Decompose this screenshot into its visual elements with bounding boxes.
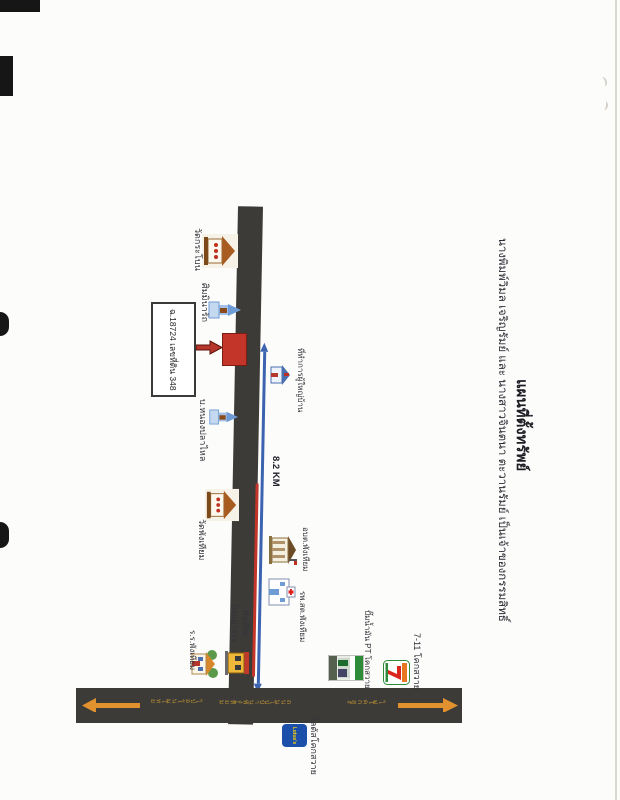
wat-krabon-label: วัดกระโบน: [193, 228, 202, 271]
school-label: ร.ร.พังเทียม: [188, 630, 196, 670]
route-arrow-right-icon: [398, 698, 458, 712]
property-marker: [222, 333, 247, 366]
hospital-label: รพ.สต.พังเทียม: [298, 591, 306, 642]
distance-label: 8.2 KM: [271, 456, 281, 487]
hospital-icon: [265, 577, 297, 607]
gas-station-photo: [328, 655, 364, 681]
road-label-middle: มยทีเงพันาบ้ปไนนถ: [218, 699, 291, 706]
pt-station-label: ปั๊มน้ำมัน PT โคกสวาย: [363, 610, 371, 689]
road-label-right: งสูกคโปไ: [347, 699, 382, 706]
government-office-icon: [264, 535, 298, 565]
spire-pavilion-icon: [208, 407, 238, 427]
main-road-group: [216, 206, 272, 725]
punch-hole-mark: [0, 522, 9, 548]
punch-hole-mark: [0, 312, 9, 336]
lotus-label: โลตัสโคกสวาย: [309, 716, 318, 775]
ban-nong-pla-lai-label: บ.หนองปลาไหล: [198, 399, 207, 461]
wat-phang-thiam-label: วัดพังเทียม: [197, 519, 206, 560]
page-edge-line: [615, 0, 617, 800]
temple-icon: [202, 234, 238, 268]
scan-corner-block: [0, 56, 13, 96]
police-label-1: ป้อมตำรวจ: [230, 604, 238, 642]
sala-minarat-label: ศิมมินารัถ: [200, 283, 209, 322]
property-arrow-icon: [196, 340, 222, 355]
police-box-icon: [224, 651, 252, 675]
lotus-logo-text: Lotus's: [292, 727, 298, 745]
spire-pavilion-icon: [207, 299, 241, 321]
village-office-icon: [268, 363, 292, 387]
headman-office-label: ที่ทำการผู้ใหญ่บ้าน: [296, 348, 304, 412]
obt-phang-thiam-label: อบต.พังเทียม: [301, 527, 309, 571]
owner-caption: นางพิมพ์วิมล เจริญรัมย์ และ นางสาวจินตนา…: [496, 238, 508, 622]
road-label-left: ยทไนนโ.อปไ: [150, 698, 200, 705]
route-arrow-left-icon: [82, 698, 140, 712]
page-title: แผนที่ตั้งทรัพย์: [514, 379, 529, 471]
pencil-mark: [598, 76, 608, 88]
pencil-mark: [600, 100, 608, 110]
seven-eleven-label: 7-11 โคกสวาย: [412, 633, 421, 690]
parcel-label: ฉ.18724 เลขที่ดิน 348: [169, 309, 178, 391]
temple-icon: [205, 488, 239, 522]
seven-eleven-logo: [383, 660, 410, 685]
scan-corner-bar: [0, 0, 40, 12]
police-label-2: พังเทียม: [241, 610, 249, 637]
lotus-logo: Lotus's: [282, 724, 307, 747]
blue-arrow-up-icon: [260, 343, 268, 352]
scanned-map-page: แผนที่ตั้งทรัพย์ นางพิมพ์วิมล เจริญรัมย์…: [0, 0, 620, 800]
